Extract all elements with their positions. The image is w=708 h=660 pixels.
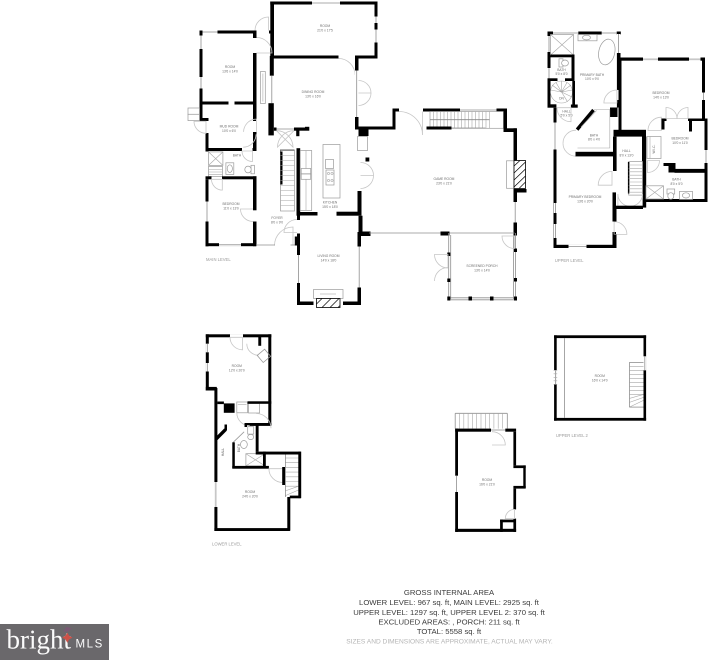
svg-text:14'0 x 18'0: 14'0 x 18'0 [321,259,337,263]
svg-text:MUD ROOM: MUD ROOM [220,125,239,129]
svg-text:UPPER LEVEL 2: UPPER LEVEL 2 [556,433,589,438]
svg-text:21'0 x 17'5: 21'0 x 17'5 [317,29,333,33]
svg-text:13'0 x 16'0: 13'0 x 16'0 [305,95,321,99]
svg-text:TOTAL: 5558 sq. ft: TOTAL: 5558 sq. ft [417,627,482,636]
svg-text:MAIN LEVEL: MAIN LEVEL [206,257,231,262]
svg-text:PRIMARY BEDROOM: PRIMARY BEDROOM [569,195,602,199]
svg-text:24'0 x 20'0: 24'0 x 20'0 [242,495,258,499]
svg-text:GAME ROOM: GAME ROOM [434,177,455,181]
svg-text:LOWER LEVEL: LOWER LEVEL [212,542,242,547]
svg-text:BATH: BATH [233,154,242,158]
svg-text:DN: DN [559,97,564,101]
svg-text:KITCHEN: KITCHEN [323,201,338,205]
svg-text:FOYER: FOYER [271,216,283,220]
svg-text:UPPER LEVEL: UPPER LEVEL [555,258,584,263]
svg-text:ROOM: ROOM [482,478,493,482]
svg-text:BEDROOM: BEDROOM [671,137,688,141]
svg-text:ROOM: ROOM [232,364,243,368]
svg-text:DINING ROOM: DINING ROOM [302,90,325,94]
svg-text:8'0 x 4'0: 8'0 x 4'0 [588,138,600,142]
svg-text:13'0 x 14'0: 13'0 x 14'0 [474,269,490,273]
svg-text:23'0 x 21'0: 23'0 x 21'0 [436,182,452,186]
svg-text:MLS: MLS [76,639,104,651]
svg-text:8'0 x 5'0: 8'0 x 5'0 [670,182,682,186]
svg-text:8'0 x 9'0: 8'0 x 9'0 [271,221,283,225]
svg-text:BEDROOM: BEDROOM [652,91,669,95]
svg-text:16'0 x 21'0: 16'0 x 21'0 [479,483,495,487]
svg-text:8'0 x 13'0: 8'0 x 13'0 [620,154,634,158]
svg-text:14'0 x 13'0: 14'0 x 13'0 [653,96,669,100]
svg-text:BATH: BATH [672,178,681,182]
svg-text:10'0 x 11'0: 10'0 x 11'0 [672,141,688,145]
svg-text:SIZES AND DIMENSIONS ARE APPRO: SIZES AND DIMENSIONS ARE APPROXIMATE, AC… [346,639,553,646]
svg-text:HALL: HALL [622,149,630,153]
svg-text:ROOM: ROOM [595,374,606,378]
svg-text:5'0 x 8'0: 5'0 x 8'0 [555,72,567,76]
svg-text:13'6 x 20'0: 13'6 x 20'0 [577,200,593,204]
svg-text:ROOM: ROOM [320,24,331,28]
svg-text:10'0 x 6'0: 10'0 x 6'0 [222,129,236,133]
svg-text:LOWER LEVEL: 967 sq. ft, MAIN: LOWER LEVEL: 967 sq. ft, MAIN LEVEL: 292… [359,598,540,607]
svg-text:GROSS INTERNAL AREA: GROSS INTERNAL AREA [404,588,495,597]
svg-text:SCREENED PORCH: SCREENED PORCH [466,264,498,268]
svg-text:10'0 x 9'0: 10'0 x 9'0 [585,77,599,81]
svg-text:EXCLUDED AREAS: , PORCH: 211 s: EXCLUDED AREAS: , PORCH: 211 sq. ft [378,618,520,627]
svg-text:bright: bright [7,625,72,655]
svg-text:13'6 x 14'0: 13'6 x 14'0 [222,70,238,74]
svg-text:HALL: HALL [221,448,225,456]
svg-text:W.I.C.: W.I.C. [652,144,656,153]
svg-text:16'0 x 14'0: 16'0 x 14'0 [592,379,608,383]
svg-text:15'0 x 18'0: 15'0 x 18'0 [322,205,338,209]
svg-text:ROOM: ROOM [245,490,256,494]
svg-text:LIVING ROOM: LIVING ROOM [318,254,340,258]
svg-text:UPPER LEVEL: 1297 sq. ft, UPPE: UPPER LEVEL: 1297 sq. ft, UPPER LEVEL 2:… [353,608,545,617]
svg-text:11'0 x 13'0: 11'0 x 13'0 [223,207,239,211]
svg-text:12'0 x 20'0: 12'0 x 20'0 [229,369,245,373]
svg-text:BEDROOM: BEDROOM [222,202,239,206]
svg-text:ROOM: ROOM [225,65,236,69]
